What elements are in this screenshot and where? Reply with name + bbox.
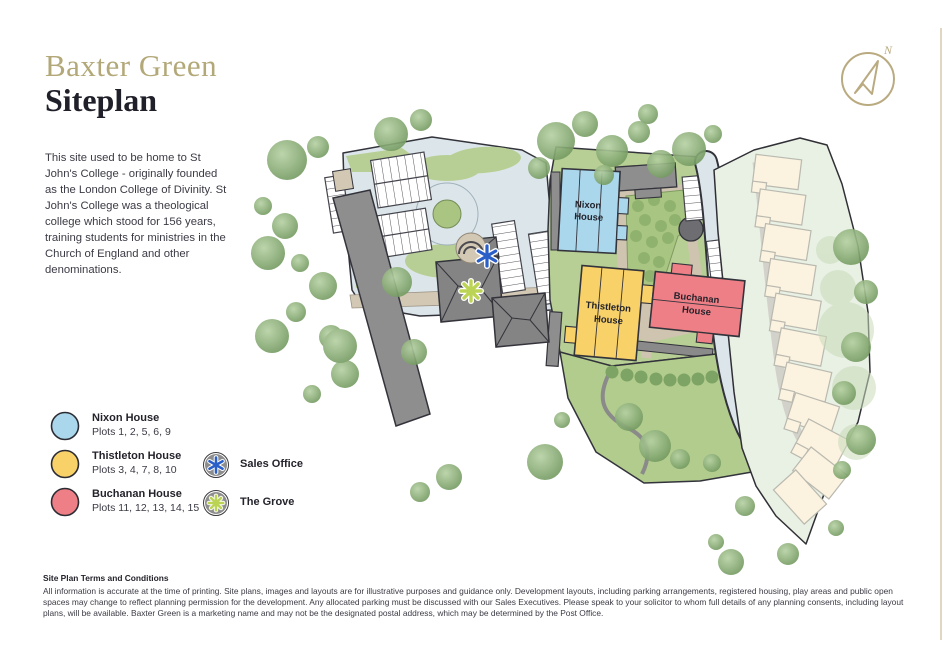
compass-north-label: N xyxy=(883,43,893,57)
buchanan-key-disc xyxy=(50,487,80,517)
asterisk-green-icon xyxy=(205,492,227,514)
sales-office-key-disc xyxy=(203,452,229,478)
legend-nixon-name: Nixon House xyxy=(92,412,159,424)
grove-marker xyxy=(461,281,481,301)
legend-thistleton-name: Thistleton House xyxy=(92,450,181,462)
terms-body: All information is accurate at the time … xyxy=(43,586,917,620)
legend-item-buchanan: Buchanan House Plots 11, 12, 13, 14, 15 xyxy=(50,487,80,517)
page-title: Siteplan xyxy=(45,82,157,119)
legend-buchanan-name: Buchanan House xyxy=(92,488,182,500)
legend-sales-office-label: Sales Office xyxy=(240,458,303,470)
legend-nixon-plots: Plots 1, 2, 5, 6, 9 xyxy=(92,426,171,438)
grove-key-disc xyxy=(203,490,229,516)
legend-thistleton-plots: Plots 3, 4, 7, 8, 10 xyxy=(92,464,177,476)
north-compass-icon: N xyxy=(842,43,894,105)
svg-text:Nixon House: Nixon House xyxy=(574,199,604,223)
page-edge-line xyxy=(940,28,942,640)
legend-item-thistleton: Thistleton House Plots 3, 4, 7, 8, 10 xyxy=(50,449,80,479)
terms-heading: Site Plan Terms and Conditions xyxy=(43,573,917,583)
brand-title: Baxter Green xyxy=(45,48,217,84)
intro-paragraph: This site used to be home to St John's C… xyxy=(45,150,231,278)
thistleton-key-disc xyxy=(50,449,80,479)
legend-buchanan-plots: Plots 11, 12, 13, 14, 15 xyxy=(92,502,199,514)
asterisk-blue-icon xyxy=(205,454,227,476)
siteplan-page: Nixon House Thistleton House Buchanan Ho… xyxy=(0,0,943,667)
terms-and-conditions: Site Plan Terms and Conditions All infor… xyxy=(43,573,917,620)
legend-grove-label: The Grove xyxy=(240,496,294,508)
legend-item-nixon: Nixon House Plots 1, 2, 5, 6, 9 xyxy=(50,411,80,441)
nixon-key-disc xyxy=(50,411,80,441)
